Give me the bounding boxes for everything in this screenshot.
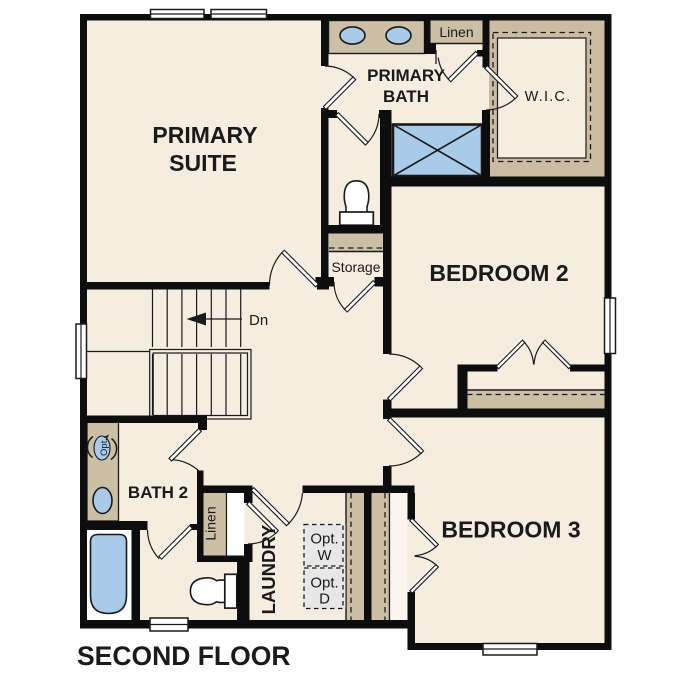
svg-text:LAUNDRY: LAUNDRY [258, 524, 279, 614]
svg-text:BEDROOM 2: BEDROOM 2 [429, 260, 568, 286]
svg-text:BEDROOM 3: BEDROOM 3 [441, 517, 580, 543]
svg-text:Storage: Storage [331, 259, 380, 275]
svg-text:W: W [317, 547, 332, 564]
svg-text:SUITE: SUITE [169, 150, 237, 176]
svg-text:Opt.: Opt. [99, 438, 110, 456]
svg-text:Linen: Linen [439, 24, 473, 40]
svg-text:BATH: BATH [383, 87, 429, 106]
svg-text:PRIMARY: PRIMARY [152, 122, 257, 148]
svg-text:W.I.C.: W.I.C. [525, 89, 572, 105]
svg-text:Opt.: Opt. [310, 531, 338, 548]
svg-text:Opt.: Opt. [310, 575, 338, 592]
svg-text:D: D [319, 591, 330, 608]
svg-text:BATH 2: BATH 2 [128, 483, 188, 502]
svg-text:Dn: Dn [249, 312, 268, 329]
svg-text:Linen: Linen [203, 506, 219, 540]
svg-text:SECOND FLOOR: SECOND FLOOR [77, 641, 290, 671]
svg-text:PRIMARY: PRIMARY [367, 66, 445, 85]
